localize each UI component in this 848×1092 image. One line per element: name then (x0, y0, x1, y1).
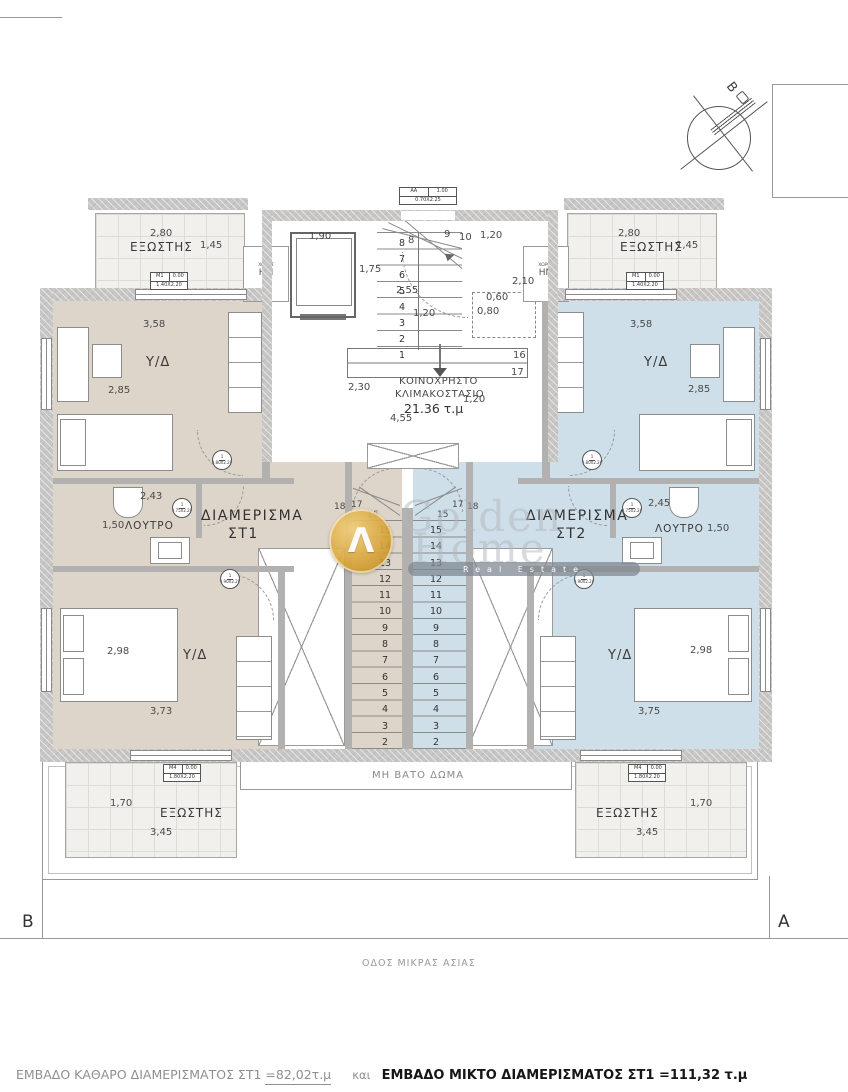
sink-basin (630, 542, 654, 559)
tag-cell: 1.80Χ2.20 (629, 774, 665, 782)
tag-cell: 1.40Χ2.20 (627, 282, 663, 290)
window (41, 338, 52, 410)
window (41, 608, 52, 692)
door-tag: 10.90Χ2.20 (574, 569, 594, 589)
window (760, 608, 771, 692)
net-area-label: ΕΜΒΑΔΟ ΚΑΘΑΡΟ ΔΙΑΜΕΡΙΣΜΑΤΟΣ ΣΤ1 (16, 1067, 265, 1082)
toilet (669, 487, 699, 518)
balcony-label: ΕΞΩΣΤΗΣ (160, 806, 223, 820)
window (760, 338, 771, 410)
st1-fan-number: 18 (334, 502, 345, 512)
dim-tread-w: 1,20 (413, 308, 435, 319)
section-line (769, 876, 770, 938)
step-number-16: 16 (513, 350, 526, 361)
dim: 2,80 (150, 228, 172, 239)
door-tag-size: 0.90Χ2.20 (220, 580, 240, 585)
door-tag: 10.90Χ2.20 (220, 569, 240, 589)
st1-stair-numbers: 15 14 13 12 11 10 9 8 7 6 5 4 3 2 (374, 523, 396, 751)
dim-core-width: 4,55 (390, 413, 412, 424)
fan-step-number: 9 (444, 229, 450, 240)
wall-interior (518, 566, 764, 572)
apartment-st2-code: ΣΤ2 (556, 526, 587, 542)
room-label-bath: ΛΟΥΤΡΟ (655, 523, 704, 535)
void-x-core (367, 443, 459, 469)
gross-area-value: =111,32 τ.μ (659, 1068, 747, 1083)
dim: 2,45 (648, 498, 670, 509)
pillow (728, 658, 749, 695)
door-tag-size: 0.80Χ2.20 (212, 461, 232, 466)
north-compass: Β (655, 75, 795, 185)
wall-core-left (262, 210, 272, 462)
room-label-bath: ΛΟΥΤΡΟ (125, 520, 174, 532)
wall-core-right (548, 210, 558, 462)
ground-line (0, 938, 848, 939)
room-label-bedroom: Υ/Δ (183, 648, 207, 663)
balcony-tagbox: Μ40.00 1.80Χ2.20 (628, 764, 666, 782)
wall-interior (48, 478, 294, 484)
room-label-bedroom: Υ/Δ (608, 648, 632, 663)
dim: 2,98 (690, 645, 712, 656)
elevator-car (296, 238, 352, 306)
section-marker-b: B (22, 912, 34, 932)
sink-basin (158, 542, 182, 559)
closet (228, 312, 262, 413)
dim: 2,98 (107, 646, 129, 657)
dim: 3,45 (150, 827, 172, 838)
dim: 3,75 (638, 706, 660, 717)
door-tag: 10.80Χ2.20 (582, 450, 602, 470)
dim: 1,70 (110, 798, 132, 809)
pillow (60, 419, 86, 466)
window (565, 289, 677, 300)
pillow (728, 615, 749, 652)
door-tag: 10.75Χ2.20 (622, 498, 642, 518)
room-label-bedroom: Υ/Δ (146, 355, 170, 370)
balcony-label: ΕΞΩΣΤΗΣ (620, 240, 683, 254)
door-opening (401, 211, 455, 220)
section-marker-a: A (778, 912, 790, 932)
dim: 3,58 (143, 319, 165, 330)
balcony-tagbox: Μ10.00 1.40Χ2.20 (626, 272, 664, 290)
entry-door-tagbox: ΑΑ1.00 0.70Χ2.25 (399, 187, 457, 205)
door-tag-size: 0.80Χ2.20 (582, 461, 602, 466)
apartment-st2-name: ΔΙΑΜΕΡΙΣΜΑ (526, 508, 628, 524)
window (130, 750, 232, 761)
dim-landing-d: 2,10 (512, 276, 534, 287)
door-tag-size: 0.90Χ2.20 (574, 580, 594, 585)
dim: 1,50 (102, 520, 124, 531)
door-tag-size: 0.75Χ2.20 (622, 509, 642, 514)
section-line (42, 876, 43, 938)
dim: 2,80 (618, 228, 640, 239)
wardrobe (540, 636, 576, 740)
pillow (63, 615, 84, 652)
dim: 2,85 (108, 385, 130, 396)
dim: 3,73 (150, 706, 172, 717)
window (580, 750, 682, 761)
tag-cell: Μ1 (151, 273, 170, 281)
st2-stair-numbers: 15 14 13 12 11 10 9 8 7 6 5 4 3 2 (425, 523, 447, 751)
pillow (726, 419, 752, 466)
wall-parapet (564, 198, 724, 210)
roof-label: ΜΗ ΒΑΤΟ ΔΩΜΑ (372, 770, 464, 781)
elevator-door (300, 314, 346, 316)
wall-parapet (88, 198, 248, 210)
fan-step-number: 10 (459, 232, 472, 243)
balcony-tagbox: Μ10.00 1.40Χ2.20 (150, 272, 188, 290)
pillow (63, 658, 84, 695)
tag-cell: 0.00 (170, 273, 188, 281)
apartment-st1-name: ΔΙΑΜΕΡΙΣΜΑ (201, 508, 303, 524)
dim-closet-d: 0,80 (477, 306, 499, 317)
dim-core-left: 2,30 (348, 382, 370, 393)
dim: 1,50 (707, 523, 729, 534)
wardrobe (723, 327, 755, 402)
tag-cell: 0.00 (646, 273, 664, 281)
dim: 3,45 (636, 827, 658, 838)
stair-hall-label-1: ΚΟΙΝΟΧΡΗΣΤΟ (399, 376, 478, 387)
dim-closet-w: 0,60 (486, 292, 508, 303)
wall-interior (518, 478, 764, 484)
dim: 1,70 (690, 798, 712, 809)
st1-fan-number: 17 (351, 500, 362, 510)
street-label: ΟΔΟΣ ΜΙΚΡΑΣ ΑΣΙΑΣ (362, 958, 476, 969)
tag-cell: 0.00 (648, 765, 666, 773)
tag-cell: Μ1 (627, 273, 646, 281)
window (135, 289, 247, 300)
dim: 2,43 (140, 491, 162, 502)
wall-interior (48, 566, 294, 572)
dim-stair-run: 2,55 (396, 285, 418, 296)
net-area-value: =82,02τ.μ (265, 1067, 331, 1085)
balcony-label: ΕΞΩΣΤΗΣ (130, 240, 193, 254)
dim: 1,45 (676, 240, 698, 251)
boundary-line (772, 197, 848, 198)
boundary-line (0, 17, 62, 18)
dim: 2,85 (688, 384, 710, 395)
tag-cell: ΑΑ (400, 188, 429, 196)
st2-fan-number: 18 (467, 502, 478, 512)
fan-step-number: 8 (408, 235, 414, 246)
door-tag: 10.75Χ2.20 (172, 498, 192, 518)
wardrobe (57, 327, 89, 402)
desk (92, 344, 122, 378)
floor-plan-canvas: Β ΜΗ ΒΑΤΟ ΔΩΜΑ 8 7 6 5 4 3 2 1 8 9 10 16… (0, 0, 848, 1092)
downstair-arrow-shaft (439, 344, 441, 368)
tag-cell: 1.40Χ2.20 (151, 282, 187, 290)
stair-hall-area: 21.36 τ.μ (404, 401, 463, 416)
elevator-door (300, 318, 346, 320)
tag-cell: Μ4 (629, 765, 648, 773)
tag-cell: 0.70Χ2.25 (400, 197, 456, 205)
tag-cell: 0.00 (183, 765, 201, 773)
dim-elevator-d: 1,75 (359, 264, 381, 275)
tag-cell: Μ4 (164, 765, 183, 773)
door-tag: 10.80Χ2.20 (212, 450, 232, 470)
apartment-st1-code: ΣΤ1 (228, 526, 259, 542)
dim-core-right: 1,20 (463, 394, 485, 405)
st2-fan-number: 17 (452, 500, 463, 510)
dim-top-width: 1,20 (480, 230, 502, 241)
step-number-17: 17 (511, 367, 524, 378)
st2-fan-number: 15 (437, 510, 448, 520)
wardrobe (236, 636, 272, 740)
door-tag-size: 0.75Χ2.20 (172, 509, 192, 514)
dim: 3,58 (630, 319, 652, 330)
room-label-bedroom: Υ/Δ (644, 355, 668, 370)
wall-interior (527, 572, 534, 749)
tag-cell: 1.80Χ2.20 (164, 774, 200, 782)
conjunction: και (352, 1068, 370, 1082)
dim-elevator-w: 1,90 (309, 231, 331, 242)
st1-fan-number: 16 (367, 510, 378, 520)
desk (690, 344, 720, 378)
tag-cell: 1.00 (429, 188, 457, 196)
balcony-label: ΕΞΩΣΤΗΣ (596, 806, 659, 820)
balcony-tagbox: Μ40.00 1.80Χ2.20 (163, 764, 201, 782)
dim: 1,45 (200, 240, 222, 251)
wall-interior (278, 572, 285, 749)
area-statement: ΕΜΒΑΔΟ ΚΑΘΑΡΟ ΔΙΑΜΕΡΙΣΜΑΤΟΣ ΣΤ1 =82,02τ.… (16, 1064, 836, 1083)
gross-area-label: ΕΜΒΑΔΟ ΜΙΚΤΟ ΔΙΑΜΕΡΙΣΜΑΤΟΣ ΣΤ1 (382, 1068, 659, 1083)
toilet (113, 487, 143, 518)
wall-party (402, 508, 413, 749)
